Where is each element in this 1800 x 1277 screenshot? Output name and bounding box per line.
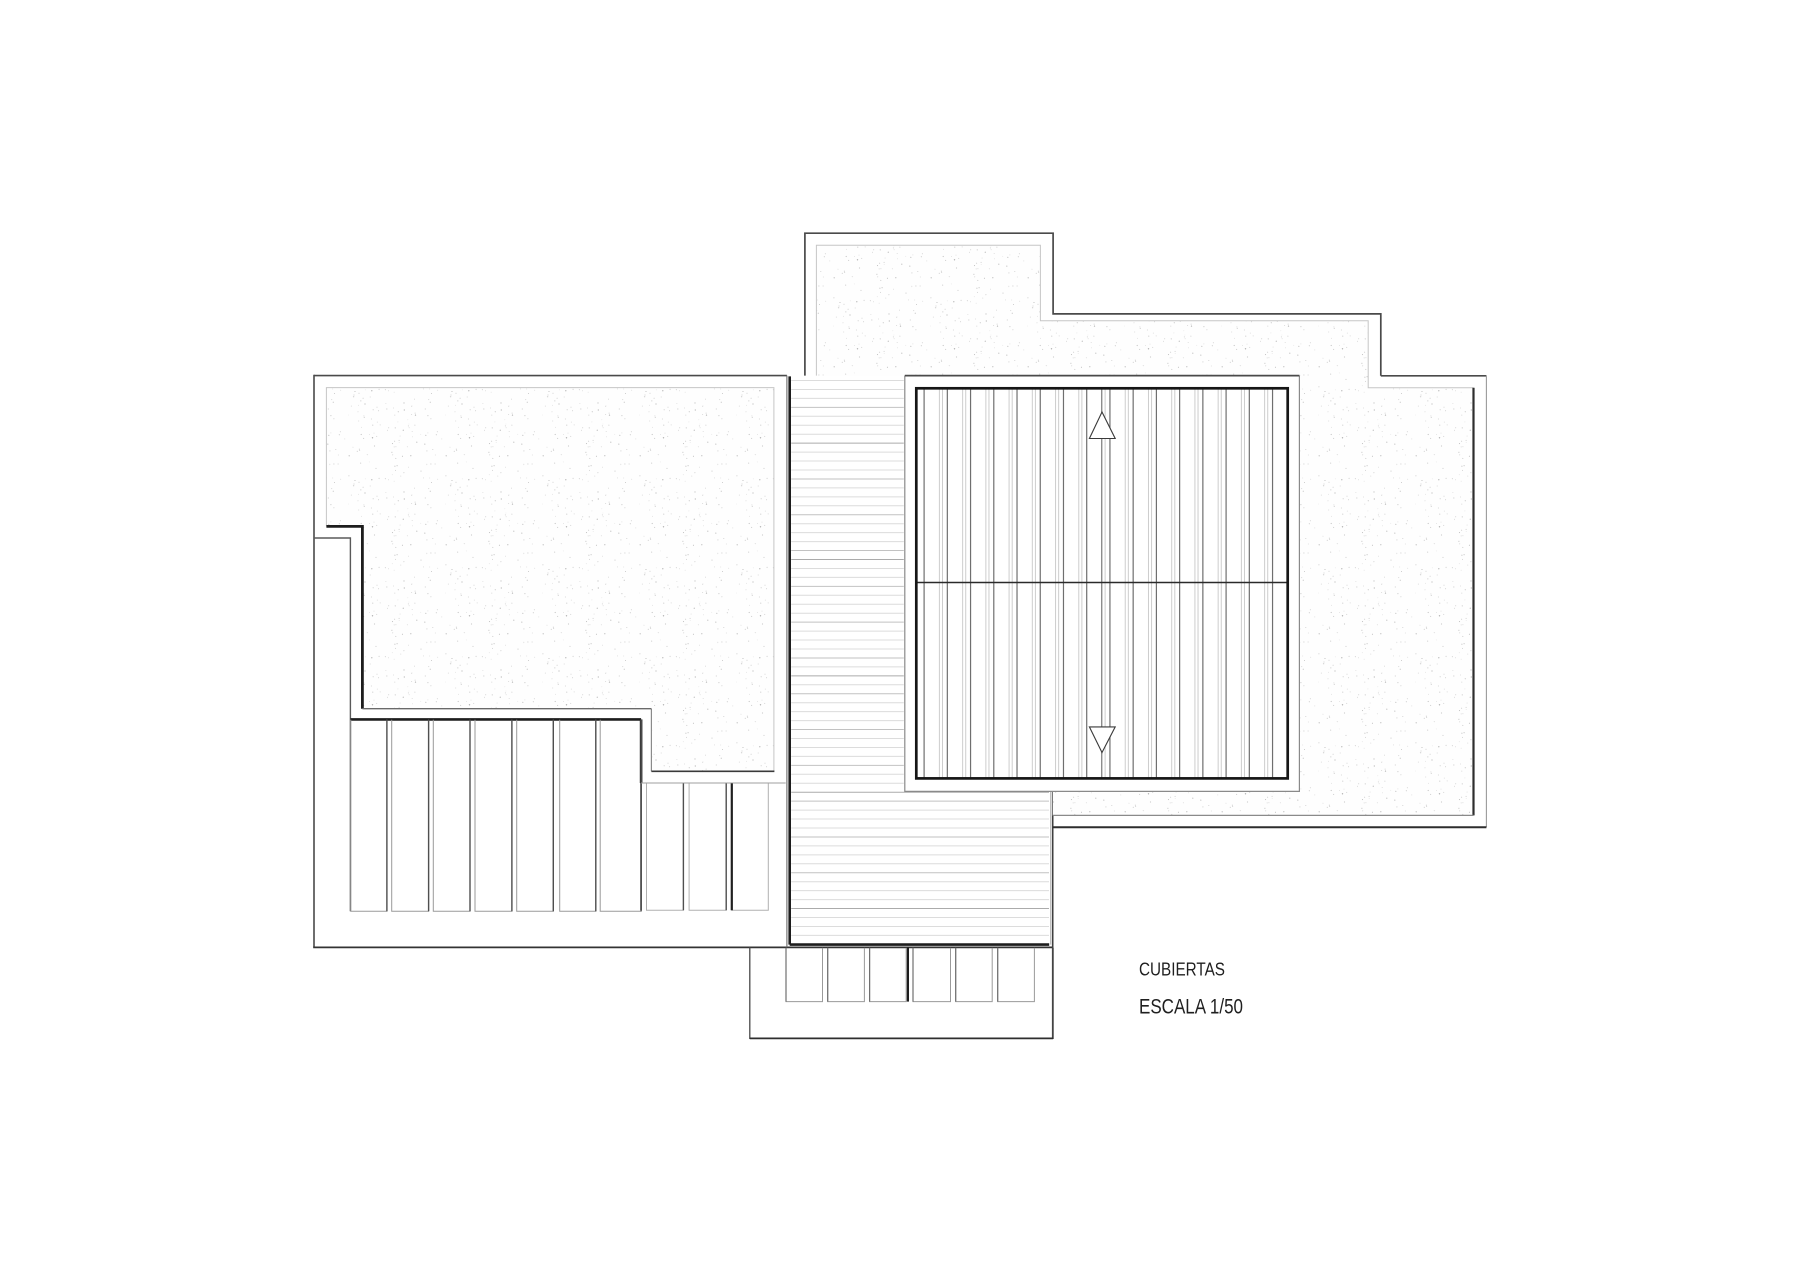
svg-text:CUBIERTAS: CUBIERTAS <box>1139 959 1225 979</box>
svg-text:ESCALA 1/50: ESCALA 1/50 <box>1139 996 1243 1019</box>
